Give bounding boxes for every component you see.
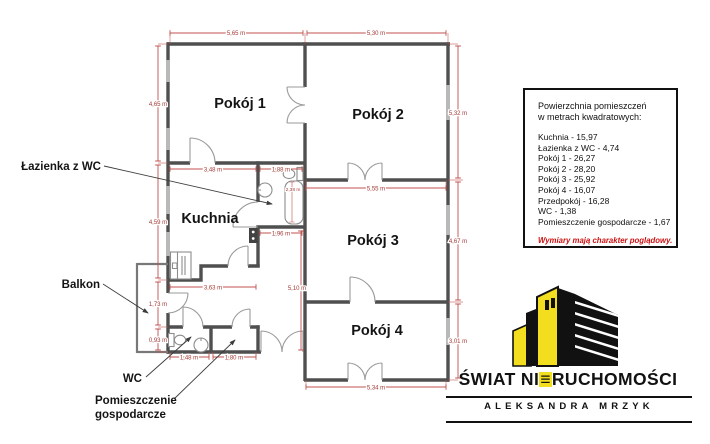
label-gospodarcze-line1: Pomieszczenie	[95, 395, 177, 407]
dim-bathtub: 2,38 m	[286, 187, 301, 193]
dim-right-upper: 5,32 m	[449, 111, 467, 117]
dim-hall-vertical: 5,10 m	[288, 286, 306, 292]
dim-left-upper: 4,65 m	[149, 102, 167, 108]
label-lazienka: Łazienka z WC	[21, 161, 101, 173]
dim-left-bottom: 0,93 m	[149, 338, 167, 344]
room-label-pokoj4: Pokój 4	[351, 323, 403, 339]
stove-icon	[249, 228, 258, 243]
logo-company-name: ŚWIAT NI≡RUCHOMOŚCI	[440, 369, 696, 390]
floor-plan-page: 5,65 m 5,30 m 4,65 m 4,59 m 1,73 m 0,93 …	[0, 0, 710, 444]
dim-left-mid: 4,59 m	[149, 220, 167, 226]
legend-title-line2: w metrach kwadratowych:	[538, 112, 676, 123]
label-balkon: Balkon	[62, 279, 100, 291]
logo-divider-top	[446, 396, 692, 398]
dim-kitchen-top: 3,48 m	[204, 167, 222, 173]
logo-divider-bottom	[446, 421, 692, 423]
bath-sink-icon	[258, 183, 272, 197]
dim-kitchen-bottom: 3,63 m	[204, 285, 222, 291]
dim-right-lower: 3,01 m	[449, 339, 467, 345]
wc-sink-icon	[194, 338, 208, 352]
dim-room4-bottom: 5,34 m	[367, 385, 385, 391]
logo-agent-name: ALEKSANDRA MRZYK	[446, 401, 692, 412]
room-label-pokoj3: Pokój 3	[347, 233, 399, 249]
dim-room3-top: 5,55 m	[367, 186, 385, 192]
logo-stylized-e-icon: ≡	[539, 372, 552, 387]
legend-item: WC - 1,38	[538, 206, 676, 217]
leader-lines	[103, 166, 272, 399]
legend-title-line1: Powierzchnia pomieszczeń	[538, 101, 676, 112]
kitchen-counter-icon	[171, 252, 192, 279]
legend-item: Łazienka z WC - 4,74	[538, 143, 676, 154]
legend-item: Pokój 4 - 16,07	[538, 185, 676, 196]
dim-top-right: 5,30 m	[367, 31, 385, 37]
area-legend-box: Powierzchnia pomieszczeń w metrach kwadr…	[523, 88, 678, 248]
dim-bath-top: 1,88 m	[272, 167, 290, 173]
legend-items: Kuchnia - 15,97 Łazienka z WC - 4,74 Pok…	[538, 132, 676, 227]
dim-wc-width: 1,48 m	[180, 355, 198, 361]
label-gospodarcze-line2: gospodarcze	[95, 409, 166, 421]
dim-right-mid: 4,67 m	[449, 239, 467, 245]
legend-item: Pomieszczenie gospodarcze - 1,67	[538, 217, 676, 228]
room-label-pokoj2: Pokój 2	[352, 107, 404, 123]
legend-item: Kuchnia - 15,97	[538, 132, 676, 143]
logo-building-icon	[513, 287, 619, 366]
legend-item: Pokój 1 - 26,27	[538, 153, 676, 164]
logo-name-pre: ŚWIAT NI	[459, 369, 540, 389]
legend-disclaimer: Wymiary mają charakter poglądowy.	[538, 236, 676, 245]
room-label-kuchnia: Kuchnia	[181, 211, 239, 227]
label-wc: WC	[123, 373, 142, 385]
room-label-pokoj1: Pokój 1	[214, 96, 266, 112]
dim-storage-width: 1,80 m	[225, 355, 243, 361]
legend-item: Pokój 3 - 25,92	[538, 174, 676, 185]
legend-item: Przedpokój - 16,28	[538, 196, 676, 207]
logo-name-post: RUCHOMOŚCI	[552, 369, 678, 389]
dim-top-left: 5,65 m	[227, 31, 245, 37]
legend-item: Pokój 2 - 28,20	[538, 164, 676, 175]
dim-left-lower: 1,73 m	[149, 302, 167, 308]
dim-bath-bottom: 1,96 m	[272, 231, 290, 237]
